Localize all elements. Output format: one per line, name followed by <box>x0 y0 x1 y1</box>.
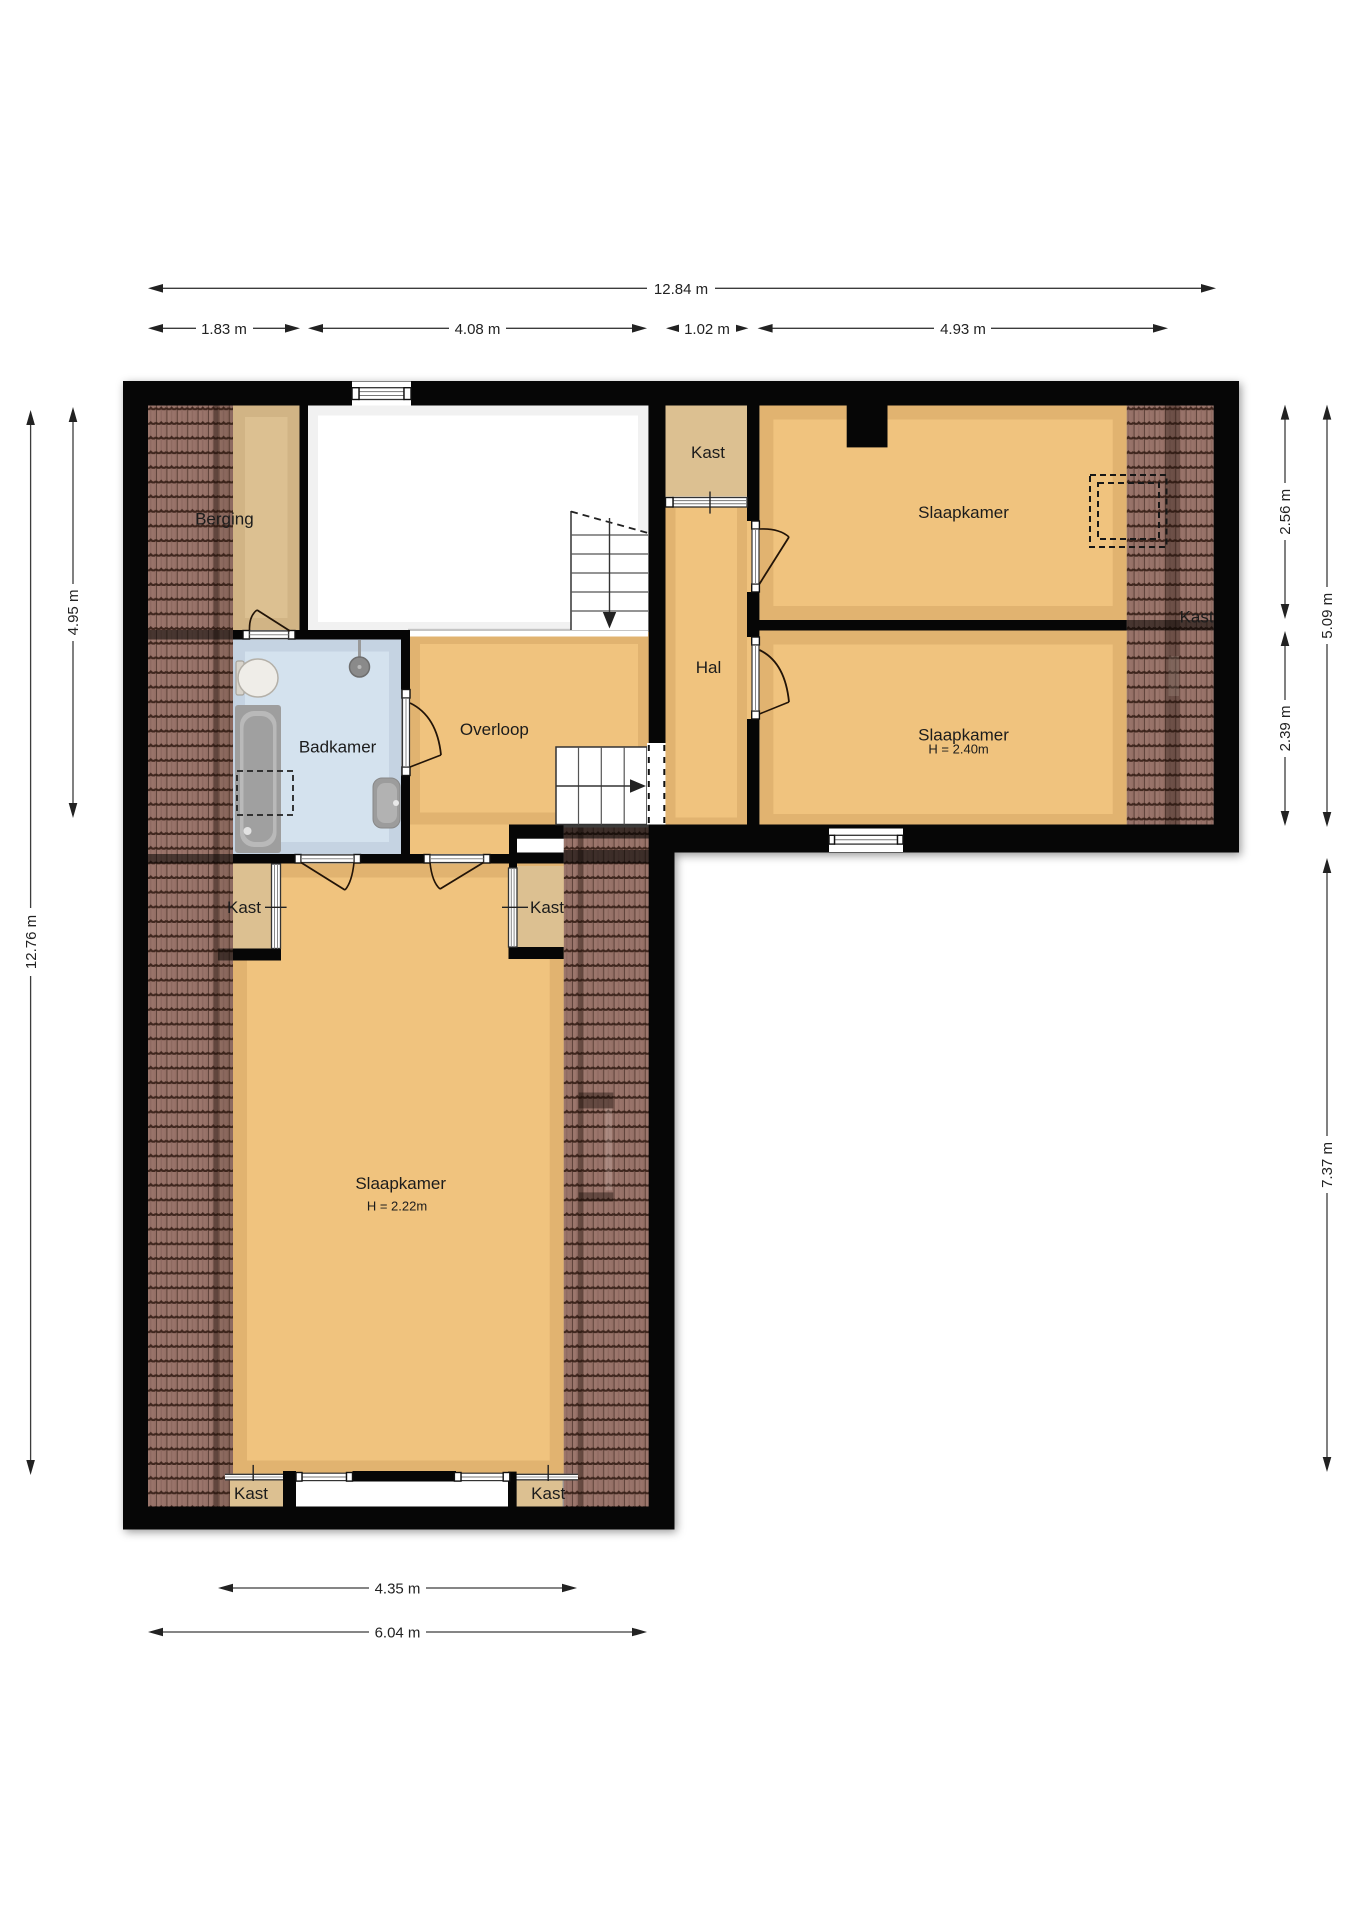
svg-text:Kast: Kast <box>234 1484 268 1503</box>
svg-text:12.84 m: 12.84 m <box>654 281 708 298</box>
svg-text:2.56 m: 2.56 m <box>1277 489 1294 535</box>
svg-text:Hal: Hal <box>696 658 722 677</box>
svg-text:4.95 m: 4.95 m <box>65 590 82 636</box>
svg-text:Kast: Kast <box>691 443 725 462</box>
svg-text:Kast: Kast <box>530 898 564 917</box>
svg-text:4.08 m: 4.08 m <box>455 321 501 338</box>
svg-text:Slaapkamer: Slaapkamer <box>918 503 1009 522</box>
svg-text:1.83 m: 1.83 m <box>201 321 247 338</box>
svg-text:Badkamer: Badkamer <box>299 738 377 757</box>
svg-text:4.35 m: 4.35 m <box>375 1581 421 1598</box>
svg-text:4.93 m: 4.93 m <box>940 321 986 338</box>
svg-text:Overloop: Overloop <box>460 720 529 739</box>
svg-text:7.37 m: 7.37 m <box>1319 1142 1336 1188</box>
svg-text:2.39 m: 2.39 m <box>1277 706 1294 752</box>
svg-text:H = 2.22m: H = 2.22m <box>367 1199 427 1214</box>
svg-text:Kast: Kast <box>227 898 261 917</box>
svg-text:5.09 m: 5.09 m <box>1319 593 1336 639</box>
svg-text:6.04 m: 6.04 m <box>375 1625 421 1642</box>
svg-text:Berging: Berging <box>195 510 254 529</box>
svg-text:Kast: Kast <box>531 1484 565 1503</box>
svg-text:Kast: Kast <box>1180 608 1214 627</box>
svg-text:Slaapkamer: Slaapkamer <box>355 1174 446 1193</box>
svg-text:H = 2.40m: H = 2.40m <box>928 742 988 757</box>
svg-text:1.02 m: 1.02 m <box>684 321 730 338</box>
svg-text:12.76 m: 12.76 m <box>23 915 40 969</box>
